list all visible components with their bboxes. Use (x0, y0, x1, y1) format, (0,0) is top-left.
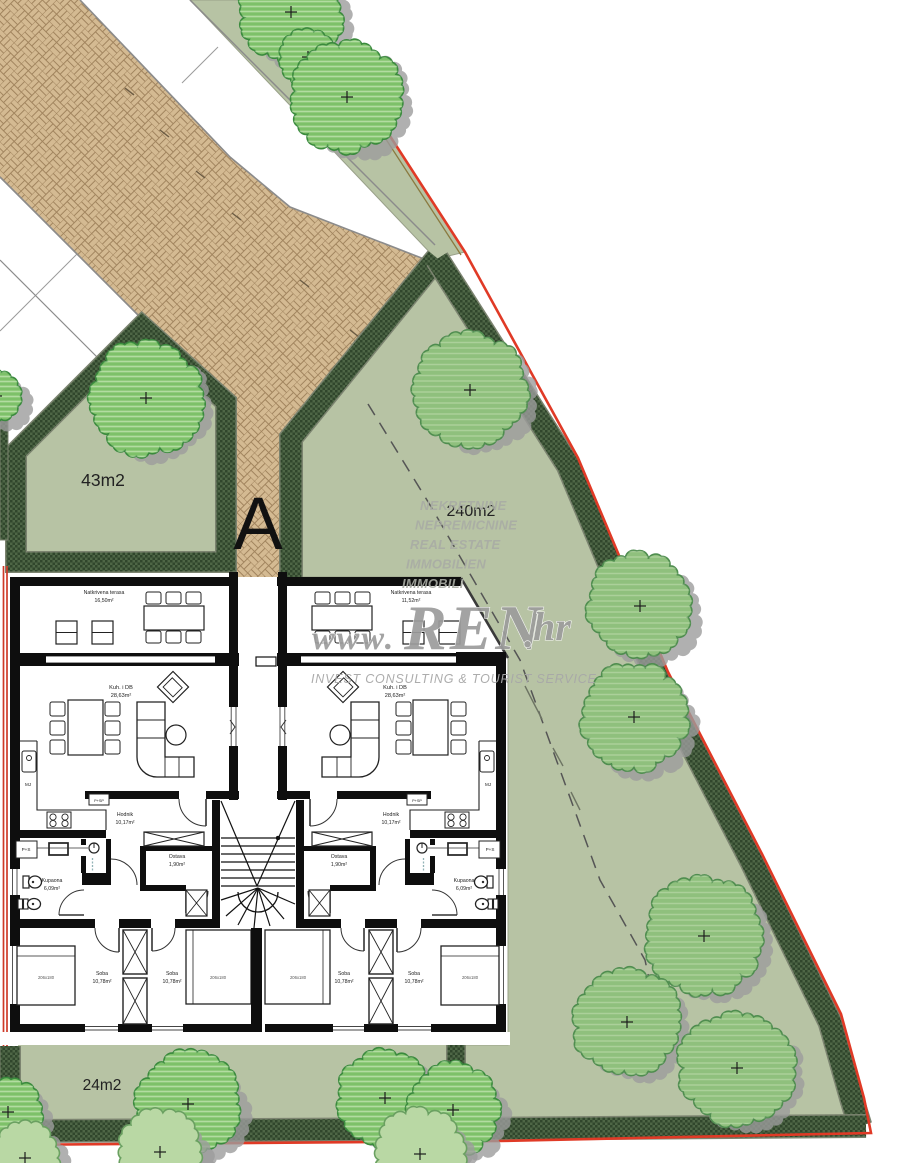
svg-text:INVEST CONSULTING & TOURIST SE: INVEST CONSULTING & TOURIST SERVICE (311, 672, 597, 686)
svg-text:P+SP: P+SP (94, 799, 104, 803)
svg-text:NEKRETNINE: NEKRETNINE (420, 498, 507, 513)
svg-text:Hodnik: Hodnik (383, 812, 400, 818)
svg-text:P+S: P+S (486, 847, 495, 852)
svg-text:hr: hr (533, 604, 571, 649)
svg-text:16,50m²: 16,50m² (94, 598, 113, 604)
svg-text:P+S: P+S (22, 847, 31, 852)
svg-text:Soba: Soba (166, 971, 178, 977)
svg-text:206x180: 206x180 (38, 975, 55, 980)
svg-text:A: A (233, 482, 283, 565)
svg-text:Kupaona: Kupaona (42, 878, 63, 884)
svg-text:NEPREMICNINE: NEPREMICNINE (415, 518, 517, 533)
svg-text:Soba: Soba (96, 971, 108, 977)
svg-text:1,90m²: 1,90m² (169, 862, 185, 868)
svg-text:Kuh. i DB: Kuh. i DB (109, 685, 133, 691)
svg-text:10,78m²: 10,78m² (92, 979, 111, 985)
svg-text:206x180: 206x180 (290, 975, 307, 980)
svg-text:1,90m²: 1,90m² (331, 862, 347, 868)
svg-text:24m2: 24m2 (83, 1077, 122, 1094)
svg-text:10,17m²: 10,17m² (381, 820, 400, 826)
svg-text:6,09m²: 6,09m² (44, 886, 60, 892)
svg-text:10,17m²: 10,17m² (115, 820, 134, 826)
svg-text:Soba: Soba (338, 971, 350, 977)
svg-text:Ostava: Ostava (169, 854, 186, 860)
svg-text:6,09m²: 6,09m² (456, 886, 472, 892)
svg-text:P+SP: P+SP (412, 799, 422, 803)
svg-text:28,63m²: 28,63m² (111, 693, 132, 699)
svg-text:Hodnik: Hodnik (117, 812, 134, 818)
svg-text:10,78m²: 10,78m² (162, 979, 181, 985)
svg-text:REAL ESTATE: REAL ESTATE (410, 537, 500, 552)
svg-text:10,78m²: 10,78m² (404, 979, 423, 985)
svg-text:MJ: MJ (485, 782, 491, 787)
svg-text:Natkrivena terasa: Natkrivena terasa (84, 590, 125, 596)
svg-text:Ostava: Ostava (331, 854, 348, 860)
svg-text:Kupaona: Kupaona (454, 878, 475, 884)
svg-text:10,78m²: 10,78m² (334, 979, 353, 985)
svg-text:IMMOBILI: IMMOBILI (402, 576, 464, 591)
svg-text:IMMOBILIEN: IMMOBILIEN (406, 557, 486, 572)
svg-text:Soba: Soba (408, 971, 420, 977)
svg-text:MJ: MJ (25, 782, 31, 787)
svg-text:43m2: 43m2 (81, 470, 125, 490)
svg-text:206x180: 206x180 (462, 975, 479, 980)
svg-text:28,63m²: 28,63m² (385, 693, 406, 699)
svg-text:www.: www. (312, 620, 395, 657)
svg-text:206x180: 206x180 (210, 975, 227, 980)
